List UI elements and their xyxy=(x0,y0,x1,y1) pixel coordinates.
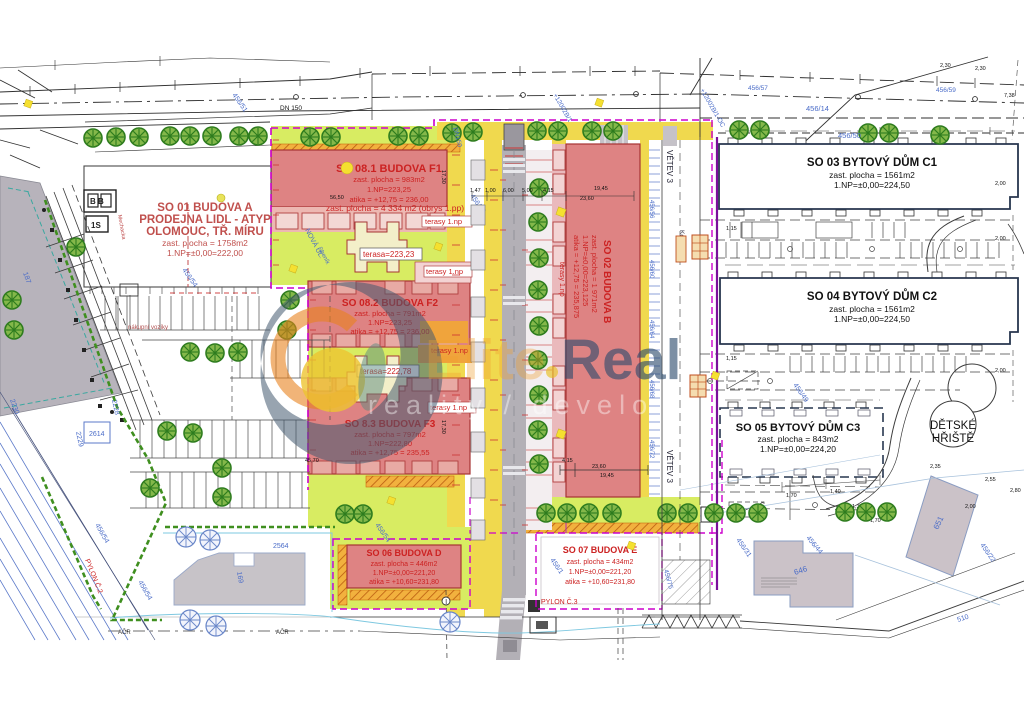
svg-text:OLOMOUC, TŘ. MÍRU: OLOMOUC, TŘ. MÍRU xyxy=(146,225,264,238)
svg-text:SO 06 BUDOVA D: SO 06 BUDOVA D xyxy=(366,548,442,558)
svg-text:23,60: 23,60 xyxy=(580,196,594,202)
svg-text:1.NP=±0,00=221,20: 1.NP=±0,00=221,20 xyxy=(569,569,632,576)
svg-text:SO 01 BUDOVA A: SO 01 BUDOVA A xyxy=(157,202,252,214)
svg-text:1,15: 1,15 xyxy=(726,226,737,232)
svg-text:1,47: 1,47 xyxy=(470,188,481,194)
svg-text:VĚTEV 3: VĚTEV 3 xyxy=(665,150,674,183)
svg-text:2,00: 2,00 xyxy=(965,504,976,510)
svg-text:456/50: 456/50 xyxy=(838,131,861,140)
svg-text:SO 05 BYTOVÝ DŮM C3: SO 05 BYTOVÝ DŮM C3 xyxy=(736,420,861,434)
svg-text:456/72: 456/72 xyxy=(648,440,654,459)
svg-text:45,70: 45,70 xyxy=(305,458,319,464)
svg-text:reality / develo: reality / develo xyxy=(368,390,654,420)
svg-text:DN 150: DN 150 xyxy=(280,105,302,112)
svg-text:456/60: 456/60 xyxy=(648,260,654,279)
svg-text:DĚTSKÉ: DĚTSKÉ xyxy=(930,419,976,432)
svg-text:1,15: 1,15 xyxy=(726,356,737,362)
svg-text:terasa=223,23: terasa=223,23 xyxy=(363,250,415,259)
svg-text:PYLON Č.3: PYLON Č.3 xyxy=(541,597,578,606)
svg-text:2,80: 2,80 xyxy=(1010,488,1021,494)
svg-text:zast. plocha = 1561m2: zast. plocha = 1561m2 xyxy=(829,170,915,180)
svg-text:5,00: 5,00 xyxy=(522,188,533,194)
svg-text:1S: 1S xyxy=(91,221,101,230)
svg-text:1.NP=±0,00=223,125: 1.NP=±0,00=223,125 xyxy=(581,235,590,306)
svg-text:17,30: 17,30 xyxy=(440,420,446,434)
svg-text:23,60: 23,60 xyxy=(592,464,606,470)
svg-text:terasy 1.np: terasy 1.np xyxy=(558,262,565,297)
svg-text:atika = +12,75 = 235,875: atika = +12,75 = 235,875 xyxy=(572,235,581,318)
svg-text:SO 03 BYTOVÝ DŮM C1: SO 03 BYTOVÝ DŮM C1 xyxy=(807,155,938,169)
svg-text:zast. plocha = 434m2: zast. plocha = 434m2 xyxy=(567,559,634,566)
svg-text:1,00: 1,00 xyxy=(485,188,496,194)
svg-text:zast. plocha = 4 334 m2 (obrys: zast. plocha = 4 334 m2 (obrys 1.pp) xyxy=(326,203,464,213)
svg-text:1.NP=±0,00=224,50: 1.NP=±0,00=224,50 xyxy=(834,180,910,190)
svg-text:2,00: 2,00 xyxy=(995,181,1006,187)
svg-text:1,40: 1,40 xyxy=(830,489,841,495)
svg-text:456/57: 456/57 xyxy=(748,85,768,92)
svg-text:19,45: 19,45 xyxy=(594,186,608,192)
svg-text:1.NP=223,25: 1.NP=223,25 xyxy=(367,185,411,194)
svg-text:Real: Real xyxy=(561,328,681,392)
svg-text:zast. plocha = 1758m2: zast. plocha = 1758m2 xyxy=(162,238,248,248)
svg-text:4,15: 4,15 xyxy=(543,188,554,194)
svg-text:2,55: 2,55 xyxy=(985,477,996,483)
svg-text:456/56: 456/56 xyxy=(648,200,654,219)
svg-text:2,35: 2,35 xyxy=(930,464,941,470)
svg-text:HŘIŠTĚ: HŘIŠTĚ xyxy=(932,432,975,445)
svg-text:SO 07 BUDOVA E: SO 07 BUDOVA E xyxy=(563,545,638,555)
svg-text:SO 04 BYTOVÝ DŮM C2: SO 04 BYTOVÝ DŮM C2 xyxy=(807,289,937,303)
svg-text:2,30: 2,30 xyxy=(940,63,951,69)
svg-text:Elite: Elite xyxy=(425,328,545,392)
svg-text:1.NP=±0,00=221,20: 1.NP=±0,00=221,20 xyxy=(373,570,436,577)
svg-text:456/59: 456/59 xyxy=(936,87,956,94)
svg-text:4,15: 4,15 xyxy=(562,458,573,464)
svg-text:1,70: 1,70 xyxy=(786,493,797,499)
svg-text:B B: B B xyxy=(90,197,104,206)
svg-text:AČR: AČR xyxy=(118,629,131,636)
svg-text:zast. plocha = 843m2: zast. plocha = 843m2 xyxy=(757,434,838,444)
svg-text:nákupní vozíky: nákupní vozíky xyxy=(128,325,168,331)
svg-text:zast. plocha = 1561m2: zast. plocha = 1561m2 xyxy=(829,304,915,314)
svg-text:2,00: 2,00 xyxy=(995,236,1006,242)
svg-text:7,38: 7,38 xyxy=(1004,93,1015,99)
svg-text:AČR: AČR xyxy=(276,629,289,636)
svg-text:19,45: 19,45 xyxy=(600,473,614,479)
svg-text:zast. plocha = 1 971m2: zast. plocha = 1 971m2 xyxy=(590,235,599,313)
svg-text:SO 02 BUDOVA B: SO 02 BUDOVA B xyxy=(601,240,612,323)
svg-text:2,00: 2,00 xyxy=(995,368,1006,374)
svg-text:56,50: 56,50 xyxy=(330,195,344,201)
svg-text:atika = +10,60=231,80: atika = +10,60=231,80 xyxy=(565,579,635,586)
svg-text:17,30: 17,30 xyxy=(440,170,446,184)
svg-text:atika = +10,60=231,80: atika = +10,60=231,80 xyxy=(369,579,439,586)
svg-text:zast. plocha = 446m2: zast. plocha = 446m2 xyxy=(371,561,438,568)
svg-text:PRODEJNA LIDL - ATYP: PRODEJNA LIDL - ATYP xyxy=(139,214,271,226)
svg-text:2564: 2564 xyxy=(273,543,289,550)
svg-text:VĚTEV 3: VĚTEV 3 xyxy=(665,450,674,483)
svg-text:1.NP=±0,00=222,00: 1.NP=±0,00=222,00 xyxy=(167,248,243,258)
svg-text:1.NP=±0,00=224,50: 1.NP=±0,00=224,50 xyxy=(834,314,910,324)
svg-text:2614: 2614 xyxy=(89,431,105,438)
svg-text:1.NP=±0,00=224,20: 1.NP=±0,00=224,20 xyxy=(760,444,836,454)
svg-text:456/14: 456/14 xyxy=(806,104,829,113)
svg-text:6,00: 6,00 xyxy=(503,188,514,194)
svg-text:zast. plocha = 983m2: zast. plocha = 983m2 xyxy=(353,175,425,184)
svg-text:2,30: 2,30 xyxy=(975,66,986,72)
svg-text:terasy 1.np: terasy 1.np xyxy=(425,217,462,226)
